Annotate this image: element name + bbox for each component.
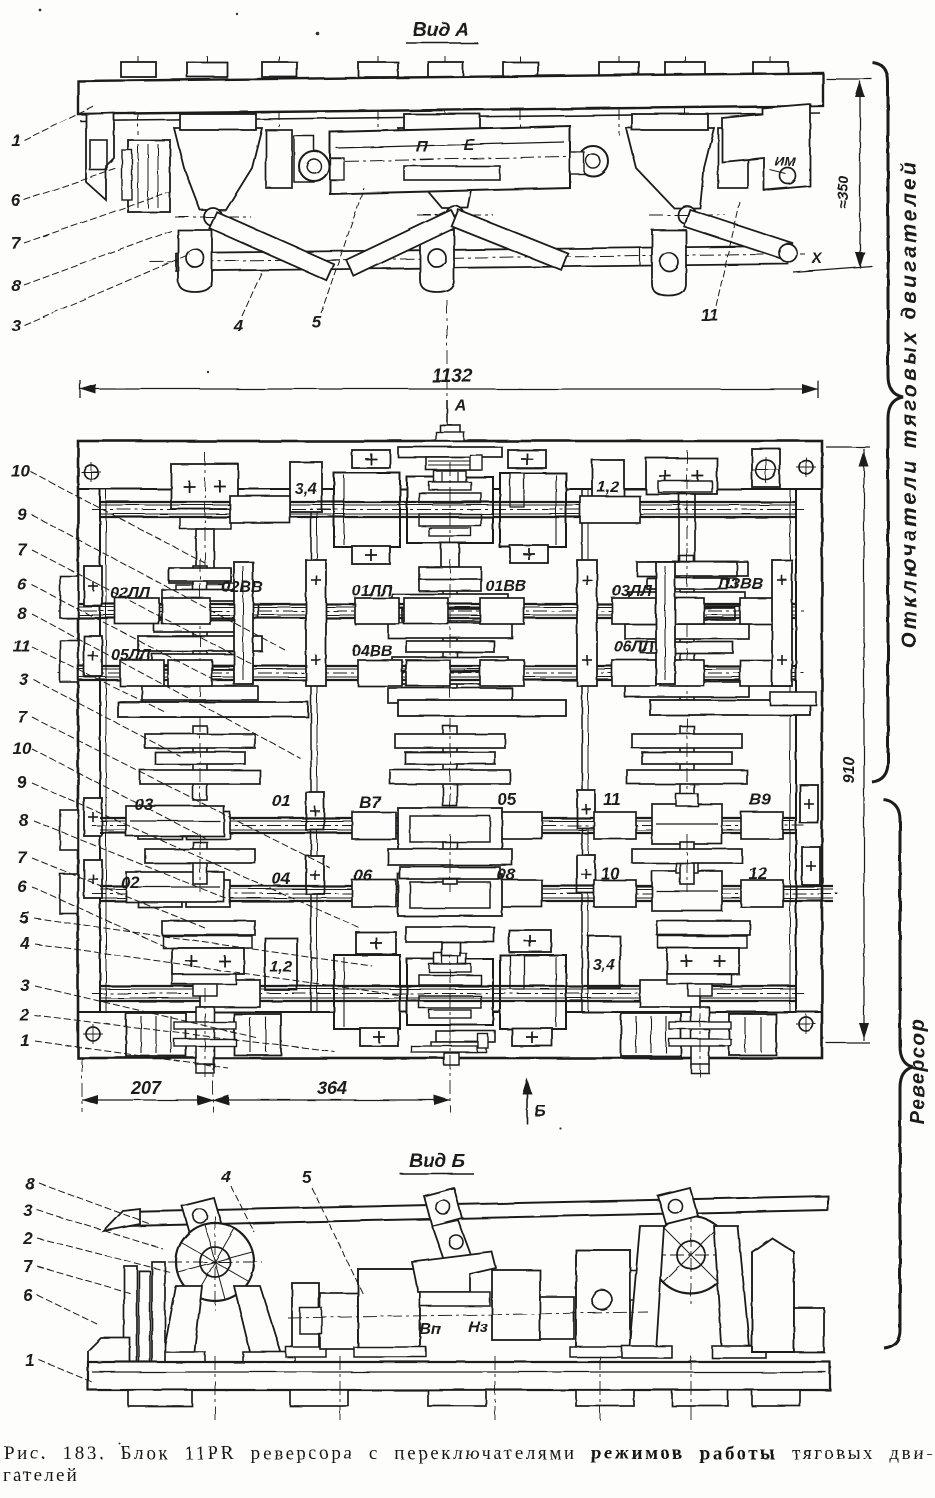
- svg-text:1: 1: [11, 131, 20, 150]
- svg-text:1132: 1132: [432, 366, 473, 387]
- svg-text:8: 8: [11, 276, 21, 295]
- svg-text:ПЗВВ: ПЗВВ: [719, 576, 764, 593]
- svg-text:Реверсор: Реверсор: [907, 1018, 929, 1125]
- svg-text:9: 9: [17, 773, 27, 792]
- svg-text:5: 5: [302, 1168, 312, 1187]
- svg-text:3: 3: [20, 976, 30, 995]
- svg-text:10: 10: [601, 864, 620, 883]
- svg-text:гателей: гателей: [3, 1465, 79, 1486]
- svg-text:08: 08: [497, 865, 516, 884]
- svg-text:6: 6: [17, 575, 27, 594]
- svg-text:12: 12: [749, 864, 768, 883]
- svg-text:207: 207: [130, 1078, 162, 1098]
- svg-text:11: 11: [701, 306, 719, 325]
- svg-text:06ЛЛ: 06ЛЛ: [614, 639, 655, 656]
- svg-text:3: 3: [11, 316, 21, 335]
- svg-text:4: 4: [19, 934, 30, 953]
- svg-text:5: 5: [19, 908, 29, 927]
- svg-text:364: 364: [317, 1078, 347, 1098]
- svg-text:4: 4: [232, 316, 243, 335]
- svg-text:4: 4: [220, 1167, 231, 1186]
- svg-text:03ЛЛ: 03ЛЛ: [612, 583, 653, 600]
- svg-text:7: 7: [23, 1257, 34, 1276]
- svg-text:6: 6: [11, 191, 21, 210]
- svg-text:7: 7: [11, 234, 22, 253]
- svg-text:3: 3: [19, 670, 29, 689]
- svg-text:01ВВ: 01ВВ: [486, 578, 527, 595]
- svg-text:7: 7: [17, 540, 28, 559]
- svg-text:10: 10: [13, 739, 32, 758]
- svg-text:01ЛЛ: 01ЛЛ: [352, 583, 393, 600]
- svg-text:10: 10: [12, 462, 31, 481]
- svg-text:В9: В9: [749, 790, 771, 809]
- svg-text:5: 5: [312, 313, 322, 332]
- svg-text:01: 01: [272, 791, 291, 810]
- svg-text:А: А: [453, 397, 466, 414]
- svg-text:1: 1: [20, 1031, 29, 1050]
- svg-text:1: 1: [25, 1351, 34, 1370]
- svg-text:1,2: 1,2: [270, 959, 292, 976]
- svg-text:Нз: Нз: [468, 1319, 488, 1336]
- svg-text:3,4: 3,4: [295, 481, 317, 498]
- svg-text:6: 6: [17, 877, 27, 896]
- svg-text:06: 06: [354, 866, 373, 885]
- svg-text:≈350: ≈350: [835, 175, 852, 209]
- svg-text:Вид А: Вид А: [413, 20, 469, 41]
- svg-text:Х: Х: [811, 250, 823, 267]
- svg-text:02: 02: [121, 873, 140, 892]
- svg-text:8: 8: [19, 811, 29, 830]
- svg-text:11: 11: [603, 790, 621, 809]
- svg-text:Б: Б: [534, 1103, 545, 1120]
- svg-text:1,2: 1,2: [597, 479, 619, 496]
- svg-text:04ВВ: 04ВВ: [352, 643, 393, 660]
- svg-text:7: 7: [17, 848, 28, 867]
- svg-text:Е: Е: [464, 137, 476, 154]
- svg-text:В7: В7: [359, 793, 382, 812]
- svg-text:ИМ: ИМ: [775, 154, 796, 169]
- svg-text:2: 2: [22, 1229, 33, 1248]
- svg-text:2: 2: [18, 1005, 29, 1024]
- svg-text:3: 3: [23, 1201, 33, 1220]
- svg-text:910: 910: [841, 757, 858, 784]
- svg-text:8: 8: [25, 1174, 35, 1193]
- svg-text:05: 05: [498, 790, 517, 809]
- svg-text:04: 04: [272, 869, 291, 888]
- svg-text:Вп: Вп: [419, 1321, 441, 1338]
- svg-text:Отключатели тяговых двигателей: Отключатели тяговых двигателей: [898, 159, 921, 648]
- svg-text:Рис. 183. Блок 11PR реверсора: Рис. 183. Блок 11PR реверсора с переключ…: [4, 1443, 935, 1464]
- svg-text:03: 03: [135, 795, 154, 814]
- svg-text:11: 11: [13, 637, 31, 656]
- svg-text:Вид Б: Вид Б: [409, 1151, 465, 1172]
- svg-text:9: 9: [17, 505, 27, 524]
- svg-text:П: П: [416, 139, 428, 156]
- svg-text:05ЛЛ: 05ЛЛ: [111, 647, 152, 664]
- svg-text:8: 8: [17, 604, 27, 623]
- svg-text:3,4: 3,4: [593, 957, 615, 974]
- svg-text:6: 6: [23, 1286, 33, 1305]
- svg-text:7: 7: [17, 707, 28, 726]
- svg-text:02ВВ: 02ВВ: [222, 579, 263, 596]
